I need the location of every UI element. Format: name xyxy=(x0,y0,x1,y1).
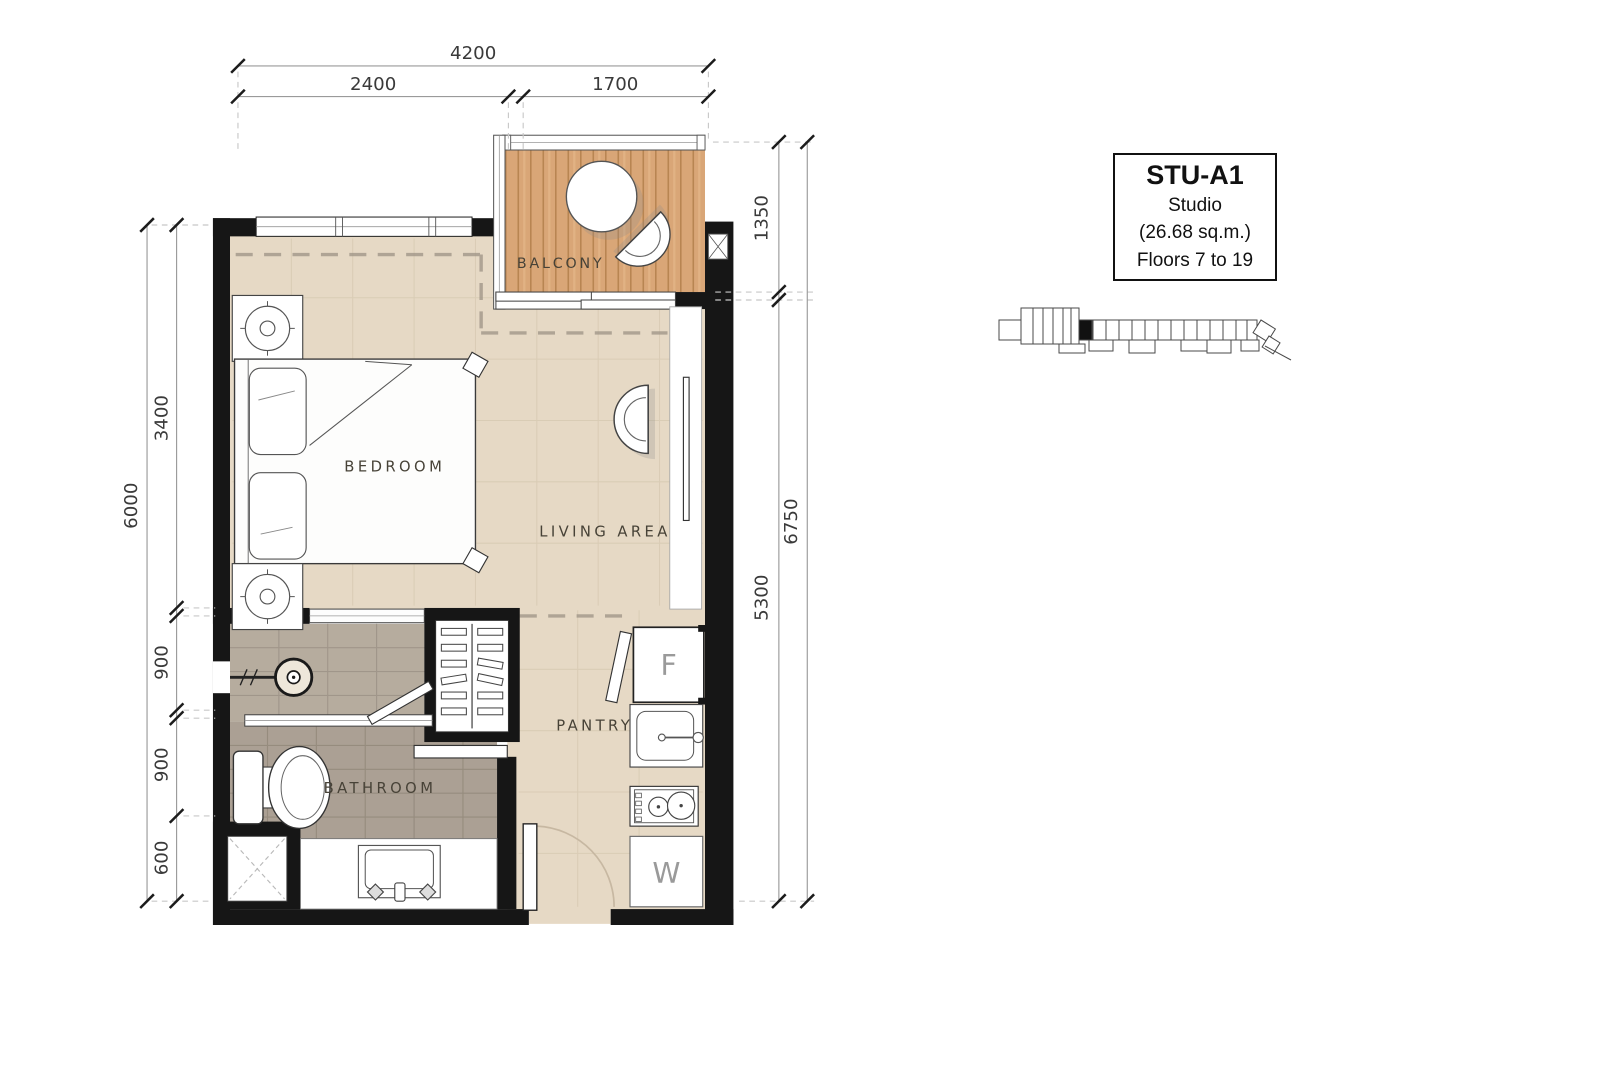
floor-plan-drawing: BEDROOM LIVING AREA xyxy=(0,0,960,1000)
unit-location-marker xyxy=(1079,320,1092,340)
dim-left-seg-3: 600 xyxy=(151,841,172,876)
nightstand-lamp-icon xyxy=(232,295,302,361)
pantry-label: PANTRY xyxy=(556,718,633,735)
dim-right-lower: 5300 xyxy=(752,575,773,621)
cooktop-icon xyxy=(630,786,698,826)
unit-type: Studio xyxy=(1168,192,1222,220)
unit-code: STU-A1 xyxy=(1146,159,1244,191)
fridge-icon: F xyxy=(633,625,706,705)
balcony-table-icon xyxy=(566,161,636,231)
dim-left-seg-2: 900 xyxy=(151,747,172,782)
shower-glass-wall xyxy=(310,609,425,623)
unit-title-block: STU-A1 Studio (26.68 sq.m.) Floors 7 to … xyxy=(1113,153,1277,281)
bedroom-label: BEDROOM xyxy=(344,459,445,476)
fridge-letter: F xyxy=(660,649,676,682)
dim-top-left: 2400 xyxy=(350,74,396,95)
dim-left-seg-0: 3400 xyxy=(152,395,173,441)
bathroom-label: BATHROOM xyxy=(324,780,437,797)
kitchen-sink-icon xyxy=(630,705,703,768)
bedroom-window xyxy=(256,217,472,236)
vanity-sink xyxy=(300,839,497,909)
dim-left-seg-1: 900 xyxy=(151,645,172,680)
balcony-sliding-door xyxy=(496,292,676,309)
dim-right-upper: 1350 xyxy=(752,195,773,241)
wall-pipe-box xyxy=(708,234,727,259)
dim-top-right: 1700 xyxy=(592,74,638,95)
wall-notch xyxy=(213,661,230,693)
dim-left-overall: 6000 xyxy=(121,483,142,529)
balcony-label: BALCONY xyxy=(517,256,605,272)
tv-icon xyxy=(683,377,689,520)
washer-icon: W xyxy=(630,836,703,906)
washer-letter: W xyxy=(652,857,680,890)
toilet-icon xyxy=(233,747,330,829)
dim-right-overall: 6750 xyxy=(781,498,802,544)
nightstand-lamp-icon xyxy=(232,564,302,630)
pillow xyxy=(249,368,306,454)
wardrobe xyxy=(436,620,509,731)
living-area-label: LIVING AREA xyxy=(539,523,671,540)
dim-top-overall: 4200 xyxy=(450,43,496,64)
building-key-plan-icon xyxy=(993,298,1293,364)
bathroom-door xyxy=(414,745,507,758)
pillow xyxy=(249,473,306,559)
unit-floors: Floors 7 to 19 xyxy=(1137,247,1253,275)
service-shaft xyxy=(228,836,287,901)
floor-plan-page: BEDROOM LIVING AREA xyxy=(0,0,1600,1067)
unit-area: (26.68 sq.m.) xyxy=(1139,219,1251,247)
